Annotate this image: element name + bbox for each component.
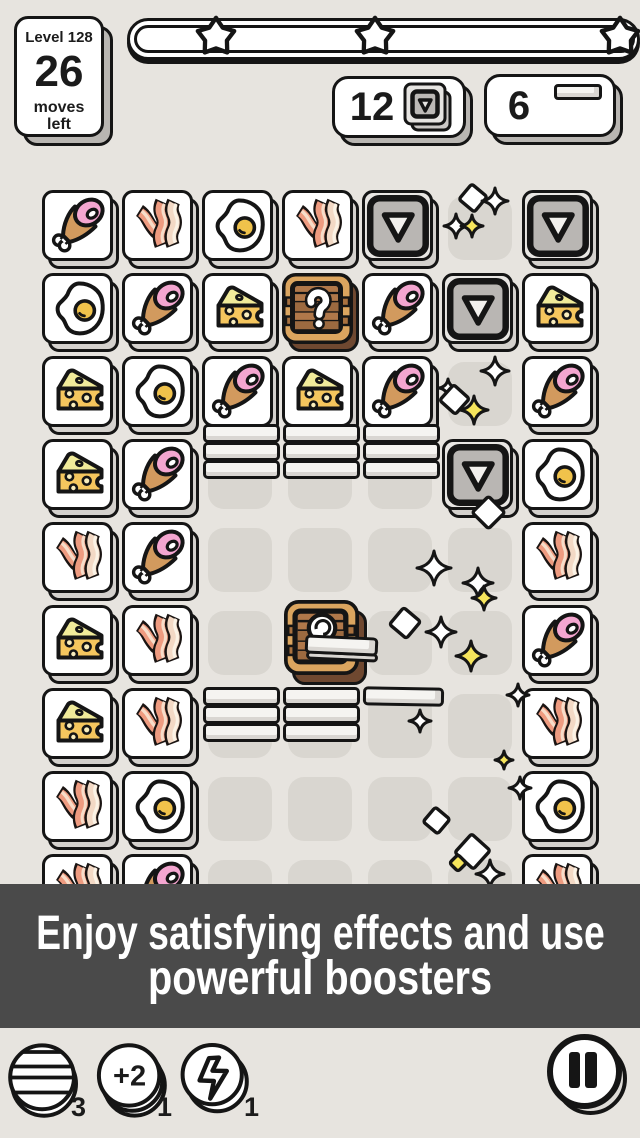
- svg-text:+2: +2: [113, 1061, 146, 1093]
